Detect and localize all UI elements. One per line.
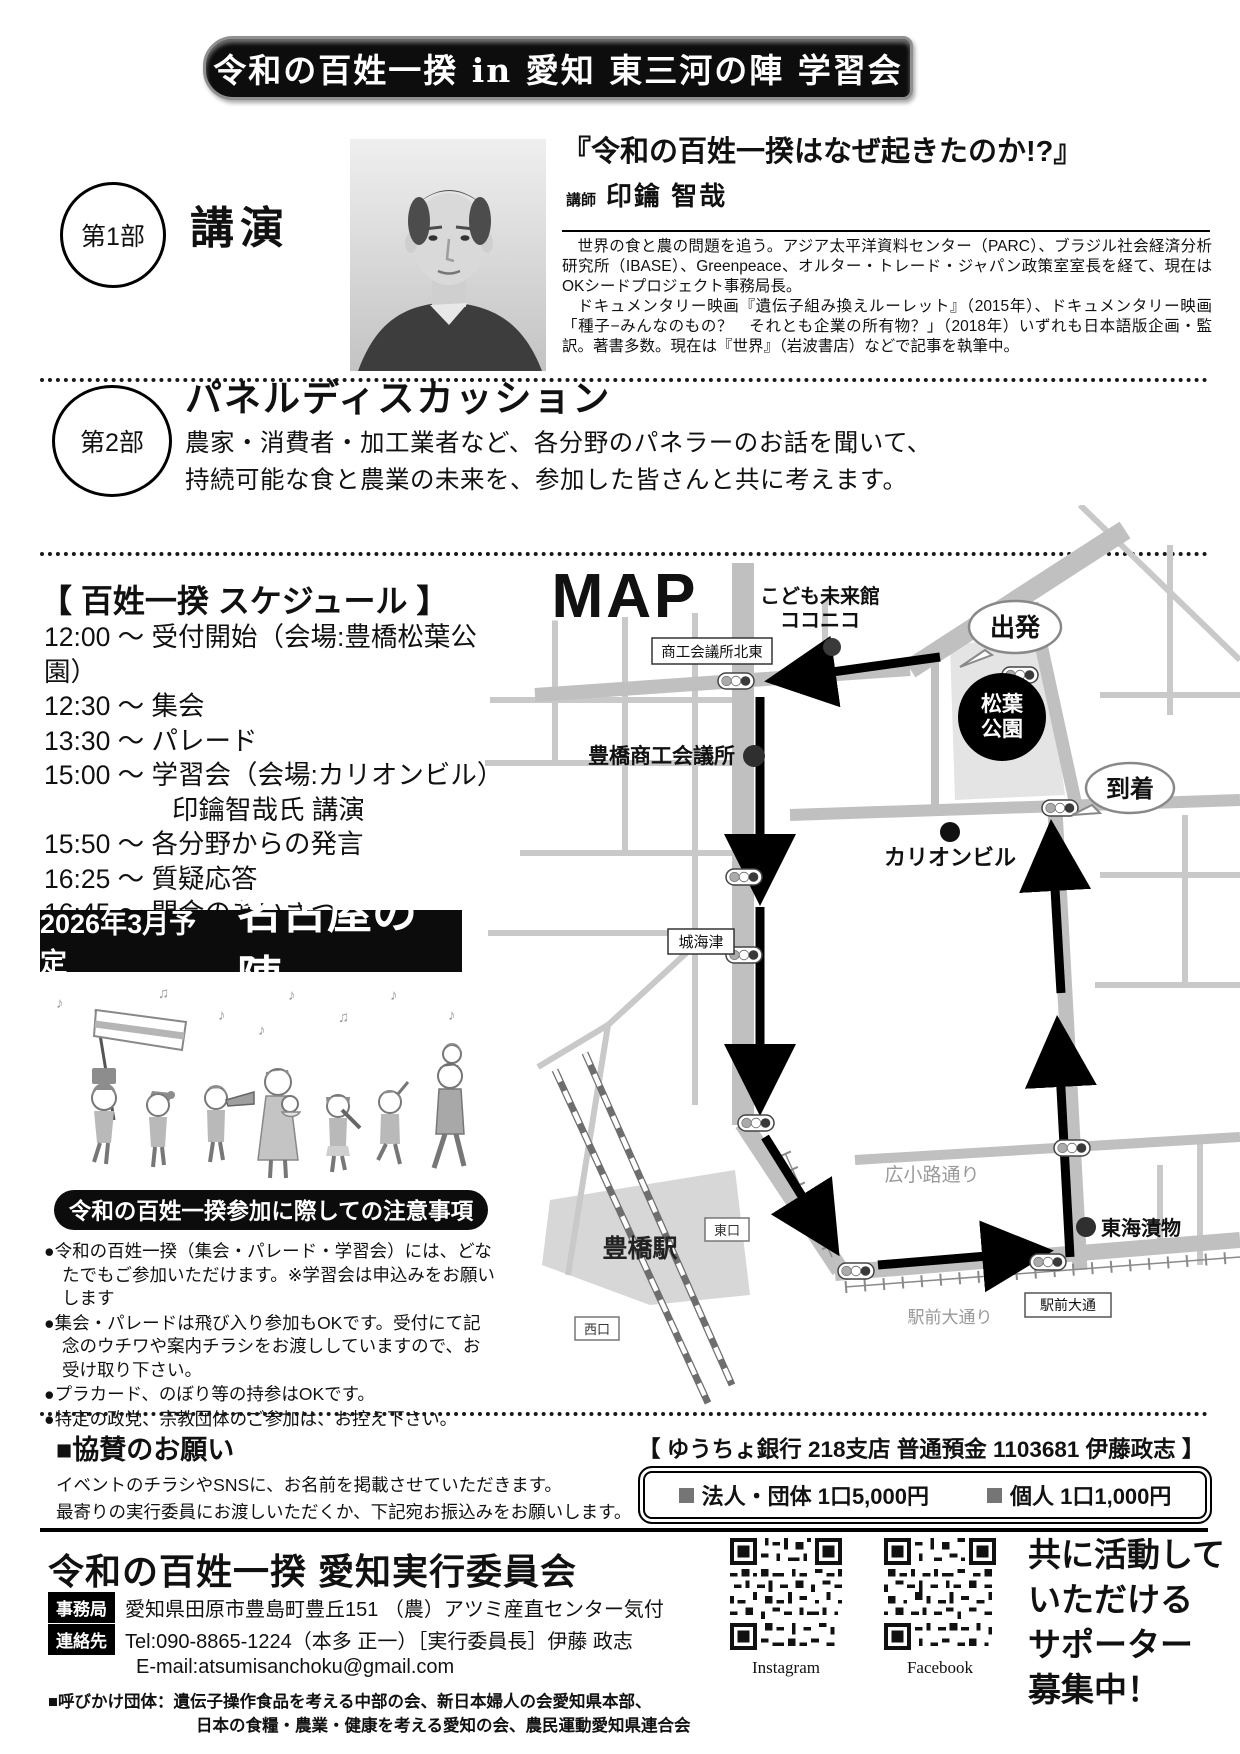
svg-text:♫: ♫ bbox=[158, 985, 169, 1002]
office-row: 事務局 愛知県田原市豊島町豊丘151 （農）アツミ産直センター気付 bbox=[48, 1592, 664, 1623]
part2-heading: パネルディスカッション bbox=[185, 368, 611, 422]
supporter-recruiting-text: 共に活動して いただける サポーター 募集中！ bbox=[1028, 1532, 1228, 1712]
fee-corporate-label: 法人・団体 1口5,000円 bbox=[702, 1479, 929, 1511]
lecturer-divider bbox=[562, 230, 1210, 232]
shoko-dot bbox=[743, 745, 765, 767]
dotted-separator-3 bbox=[40, 1412, 1208, 1416]
svg-text:駅前大通: 駅前大通 bbox=[1040, 1297, 1096, 1313]
map-logo: MAP MAP bbox=[552, 562, 699, 631]
flyer-page: 令和の百姓一揆 in 愛知 東三河の陣 学習会 第1部 講演 bbox=[0, 0, 1240, 1754]
major-roads bbox=[535, 530, 1240, 1273]
svg-text:公園: 公園 bbox=[981, 718, 1023, 741]
map-label-kokoniko: ココニコ bbox=[780, 610, 860, 632]
supporter-line: いただける bbox=[1028, 1577, 1228, 1622]
notice-item: ●プラカード、のぼり等の持参はOKです。 bbox=[44, 1383, 496, 1407]
parade-illustration: ♪♫♪ ♪♫♪ ♪♫♪ bbox=[38, 980, 484, 1180]
carillon-dot bbox=[940, 822, 960, 842]
fee-individual: 個人 1口1,000円 bbox=[987, 1479, 1171, 1511]
svg-text:到着: 到着 bbox=[1106, 775, 1154, 803]
supporter-line: 共に活動して bbox=[1028, 1532, 1228, 1577]
part1-badge-label: 第1部 bbox=[81, 217, 145, 253]
map-label-tokai: 東海漬物 bbox=[1101, 1216, 1181, 1240]
square-bullet-icon bbox=[987, 1488, 1002, 1503]
schedule-item: 12:00 〜 受付開始（会場:豊橋松葉公園） bbox=[44, 620, 494, 689]
svg-text:♫: ♫ bbox=[338, 1009, 349, 1026]
bio-paragraph-1: 世界の食と農の問題を追う。アジア太平洋資料センター（PARC）、ブラジル社会経済… bbox=[562, 237, 1212, 297]
facebook-qr-code bbox=[884, 1538, 996, 1650]
part1-badge: 第1部 bbox=[60, 182, 166, 288]
schedule-item: 13:30 〜 パレード bbox=[44, 724, 494, 759]
square-bullet-icon bbox=[679, 1488, 694, 1503]
lecture-title: 『令和の百姓一揆はなぜ起きたのか!?』 bbox=[562, 128, 1082, 170]
svg-text:♪: ♪ bbox=[218, 1007, 226, 1024]
part1-heading: 講演 bbox=[190, 192, 290, 256]
fee-individual-label: 個人 1口1,000円 bbox=[1010, 1479, 1171, 1511]
instagram-qr-code bbox=[730, 1538, 842, 1650]
sponsor-text-line2: 最寄りの実行委員にお渡しいただくか、下記宛お振込みをお願いします。 bbox=[56, 1499, 631, 1524]
calling-groups-line2: 日本の食糧・農業・健康を考える愛知の会、農民運動愛知県連合会 bbox=[196, 1712, 691, 1736]
office-address: 愛知県田原市豊島町豊丘151 （農）アツミ産直センター気付 bbox=[125, 1593, 664, 1622]
part2-badge-label: 第2部 bbox=[80, 423, 144, 459]
tokai-dot bbox=[1076, 1217, 1096, 1237]
notice-heading: 令和の百姓一揆参加に際しての注意事項 bbox=[69, 1194, 473, 1226]
speaker-photo bbox=[350, 139, 546, 371]
part2-badge: 第2部 bbox=[52, 385, 172, 497]
lecturer-name: 印鑰 智哉 bbox=[606, 176, 727, 213]
part2-text-line1: 農家・消費者・加工業者など、各分野のパネラーのお話を聞いて、 bbox=[185, 424, 932, 459]
contact-phone: Tel:090-8865-1224（本多 正一）［実行委員長］伊藤 政志 bbox=[125, 1625, 633, 1654]
notice-item: ●集会・パレードは飛び入り参加もOKです。受付にて記念のウチワや案内チラシをお渡… bbox=[44, 1312, 496, 1383]
schedule-heading: 【 百姓一揆 スケジュール 】 bbox=[40, 576, 448, 622]
svg-text:西口: 西口 bbox=[584, 1322, 610, 1337]
svg-text:松葉: 松葉 bbox=[981, 692, 1024, 716]
contact-row: 連絡先 Tel:090-8865-1224（本多 正一）［実行委員長］伊藤 政志 bbox=[48, 1624, 633, 1655]
kodomo-dot bbox=[823, 638, 841, 656]
map-label-hirokoji: 広小路通り bbox=[884, 1164, 979, 1186]
sponsor-text-line1: イベントのチラシやSNSに、お名前を掲載させていただきます。 bbox=[56, 1472, 562, 1497]
instagram-label: Instagram bbox=[730, 1658, 842, 1678]
map-label-east-exit: 東口 bbox=[705, 1218, 749, 1241]
map-label-ekimae-box: 駅前大通 bbox=[1025, 1293, 1111, 1317]
sponsor-heading: ■協賛のお願い bbox=[56, 1428, 234, 1467]
speaker-bio: 世界の食と農の問題を追う。アジア太平洋資料センター（PARC）、ブラジル社会経済… bbox=[562, 237, 1212, 357]
notice-item: ●令和の百姓一揆（集会・パレード・学習会）には、どなたでもご参加いただけます。※… bbox=[44, 1240, 496, 1311]
svg-text:MAP: MAP bbox=[552, 562, 699, 631]
notice-list: ●令和の百姓一揆（集会・パレード・学習会）には、どなたでもご参加いただけます。※… bbox=[44, 1240, 496, 1432]
svg-text:♪: ♪ bbox=[448, 1007, 456, 1024]
map-label-station: 豊橋駅 bbox=[602, 1235, 677, 1263]
map-label-ekimae-street: 駅前大通り bbox=[908, 1308, 993, 1327]
nagoya-banner: 2026年3月予定 名古屋の陣 bbox=[40, 910, 462, 972]
nagoya-date: 2026年3月予定 bbox=[40, 902, 223, 980]
svg-text:♪: ♪ bbox=[390, 987, 398, 1004]
svg-text:♪: ♪ bbox=[288, 987, 296, 1004]
supporter-line: 募集中！ bbox=[1028, 1667, 1228, 1712]
supporter-line: サポーター bbox=[1028, 1622, 1228, 1667]
svg-text:♪: ♪ bbox=[258, 1022, 266, 1039]
svg-text:東口: 東口 bbox=[714, 1223, 740, 1238]
map-bubble-arrive: 到着 bbox=[1072, 763, 1174, 815]
part2-text-line2: 持続可能な食と農業の未来を、参加した皆さんと共に考えます。 bbox=[185, 461, 908, 496]
office-label: 事務局 bbox=[48, 1592, 115, 1623]
schedule-item: 15:50 〜 各分野からの発言 bbox=[44, 827, 494, 862]
page-title: 令和の百姓一揆 in 愛知 東三河の陣 学習会 bbox=[213, 44, 902, 92]
map-label-kodomo: こども未来館 bbox=[760, 584, 880, 608]
map-label-west-exit: 西口 bbox=[575, 1317, 619, 1340]
svg-text:♪: ♪ bbox=[56, 995, 64, 1012]
lecturer-row: 講師 印鑰 智哉 bbox=[566, 176, 727, 213]
fee-box: 法人・団体 1口5,000円 個人 1口1,000円 bbox=[638, 1466, 1212, 1524]
calling-groups-line1: ■呼びかけ団体：遺伝子操作食品を考える中部の会、新日本婦人の会愛知県本部、 bbox=[48, 1688, 651, 1712]
schedule-item: 印鑰智哉氏 講演 bbox=[44, 793, 494, 828]
map-label-matsuba-park: 松葉 公園 bbox=[958, 673, 1046, 761]
map-label-shoko: 豊橋商工会議所 bbox=[588, 744, 735, 768]
svg-text:城海津: 城海津 bbox=[678, 934, 723, 951]
map-label-shirokaizu: 城海津 bbox=[668, 929, 734, 954]
lecturer-label: 講師 bbox=[566, 189, 596, 210]
map-label-shoko-ne: 商工会議所北東 bbox=[652, 638, 772, 664]
contact-email: E-mail:atsumisanchoku@gmail.com bbox=[136, 1656, 454, 1679]
svg-text:商工会議所北東: 商工会議所北東 bbox=[661, 643, 763, 661]
map-label-carillon: カリオンビル bbox=[884, 845, 1016, 870]
route-map: MAP MAP こども未来館 ココニコ 商工会議所北東 豊橋商工会議所 出発 松… bbox=[480, 505, 1240, 1405]
svg-text:出発: 出発 bbox=[990, 614, 1041, 642]
bank-account-info: 【 ゆうちょ銀行 218支店 普通預金 1103681 伊藤政志 】 bbox=[638, 1432, 1204, 1464]
bio-paragraph-2: ドキュメンタリー映画『遺伝子組み換えルーレット』（2015年）、ドキュメンタリー… bbox=[562, 297, 1212, 357]
schedule-item: 15:00 〜 学習会（会場:カリオンビル） bbox=[44, 758, 494, 793]
contact-label: 連絡先 bbox=[48, 1624, 115, 1655]
title-banner: 令和の百姓一揆 in 愛知 東三河の陣 学習会 bbox=[203, 36, 913, 100]
organization-name: 令和の百姓一揆 愛知実行委員会 bbox=[48, 1543, 577, 1595]
notice-banner: 令和の百姓一揆参加に際しての注意事項 bbox=[54, 1190, 488, 1230]
schedule-item: 12:30 〜 集会 bbox=[44, 689, 494, 724]
fee-corporate: 法人・団体 1口5,000円 bbox=[679, 1479, 929, 1511]
facebook-label: Facebook bbox=[884, 1658, 996, 1678]
